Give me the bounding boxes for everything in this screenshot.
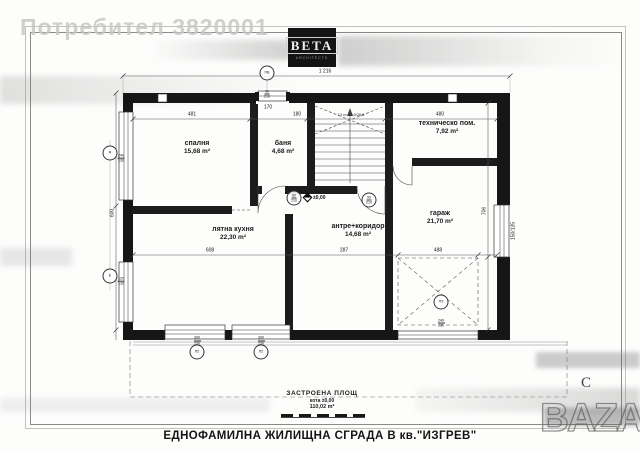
room-area: 22,30 m² bbox=[212, 234, 254, 242]
marker-circle: ПЗ bbox=[434, 295, 449, 310]
marker-size: 300230 bbox=[194, 326, 201, 346]
room-area: 15,68 m² bbox=[184, 148, 210, 156]
dimension-text: 12 bbox=[250, 113, 256, 118]
room-label: лятна кухня22,30 m² bbox=[212, 226, 254, 242]
marker-size: 120130 bbox=[118, 266, 125, 286]
built-area-value: 110,02 m² bbox=[310, 404, 335, 410]
dimension-text: 180 bbox=[293, 113, 301, 118]
beta-architects-logo: BETA ARCHITECTS bbox=[288, 28, 336, 67]
marker-circle: П2 bbox=[254, 345, 269, 360]
dimension-text: 170 bbox=[264, 106, 272, 111]
logo-name: BETA bbox=[291, 39, 333, 53]
dimension-text: 150/135 bbox=[512, 222, 517, 240]
north-letter: С bbox=[581, 375, 591, 392]
dimension-text: 600 bbox=[111, 209, 116, 217]
opening-marker: ПЗ240230 bbox=[434, 295, 449, 310]
logo-frame: BETA bbox=[286, 37, 338, 54]
room-area: 4,68 m² bbox=[272, 148, 294, 156]
opening-marker: П2300230 bbox=[190, 345, 205, 360]
room-label: баня4,68 m² bbox=[272, 140, 294, 156]
opening-marker: Е120130 bbox=[103, 269, 118, 284]
bazar-watermark: BAZAR bbox=[540, 396, 640, 441]
marker-circle: ПВ bbox=[260, 66, 275, 81]
room-area: 14,68 m² bbox=[331, 231, 384, 239]
room-label: спалня15,68 m² bbox=[184, 140, 210, 156]
dimension-text: 287 bbox=[340, 249, 348, 254]
room-name: антре+коридор bbox=[331, 223, 384, 231]
room-label: техническо пом.7,92 m² bbox=[419, 120, 476, 136]
dimension-text: 1 216 bbox=[319, 70, 332, 75]
stair-note: 13 ст. 18,5/28,5 bbox=[338, 113, 364, 117]
marker-circle: 80210 bbox=[287, 191, 302, 206]
marker-circle: П2 bbox=[190, 345, 205, 360]
dimension-text: 608 bbox=[206, 249, 214, 254]
room-name: гараж bbox=[427, 210, 453, 218]
graphic-scale-bar bbox=[281, 414, 365, 418]
dimension-text: 706 bbox=[483, 207, 488, 215]
dimension-text: 488 bbox=[434, 249, 442, 254]
level-value: ±0,00 bbox=[313, 195, 325, 201]
room-area: 21,70 m² bbox=[427, 218, 453, 226]
logo-subtitle: ARCHITECTS bbox=[296, 56, 328, 60]
opening-marker: Ф240130 bbox=[103, 146, 118, 161]
room-area: 7,92 m² bbox=[419, 128, 476, 136]
room-name: техническо пом. bbox=[419, 120, 476, 128]
built-area-label: ЗАСТРОЕНА ПЛОЩ bbox=[286, 390, 357, 397]
marker-circle: 90210 bbox=[362, 193, 377, 208]
opening-marker: П2300230 bbox=[254, 345, 269, 360]
opening-marker: 80210 bbox=[287, 191, 302, 206]
marker-size: 240230 bbox=[438, 309, 445, 329]
marker-circle: Ф bbox=[103, 146, 118, 161]
dimension-text: 481 bbox=[188, 113, 196, 118]
opening-marker: ПВ90210 bbox=[260, 66, 275, 81]
entrance-door-symbol bbox=[255, 88, 290, 104]
room-name: баня bbox=[272, 140, 294, 148]
marker-size: 300230 bbox=[258, 326, 265, 346]
room-label: гараж21,70 m² bbox=[427, 210, 453, 226]
marker-circle: Е bbox=[103, 269, 118, 284]
level-mark: ±0,00 bbox=[304, 194, 325, 201]
room-name: спалня bbox=[184, 140, 210, 148]
dimension-text: 480 bbox=[436, 113, 444, 118]
opening-marker: 90210 bbox=[362, 193, 377, 208]
room-name: лятна кухня bbox=[212, 226, 254, 234]
marker-size: 240130 bbox=[118, 143, 125, 163]
level-diamond-icon bbox=[303, 193, 313, 203]
marker-size: 90210 bbox=[264, 80, 270, 100]
staircase bbox=[315, 106, 385, 183]
room-label: антре+коридор14,68 m² bbox=[331, 223, 384, 239]
drawing-sheet: Потребител 3820001 bbox=[0, 0, 640, 453]
